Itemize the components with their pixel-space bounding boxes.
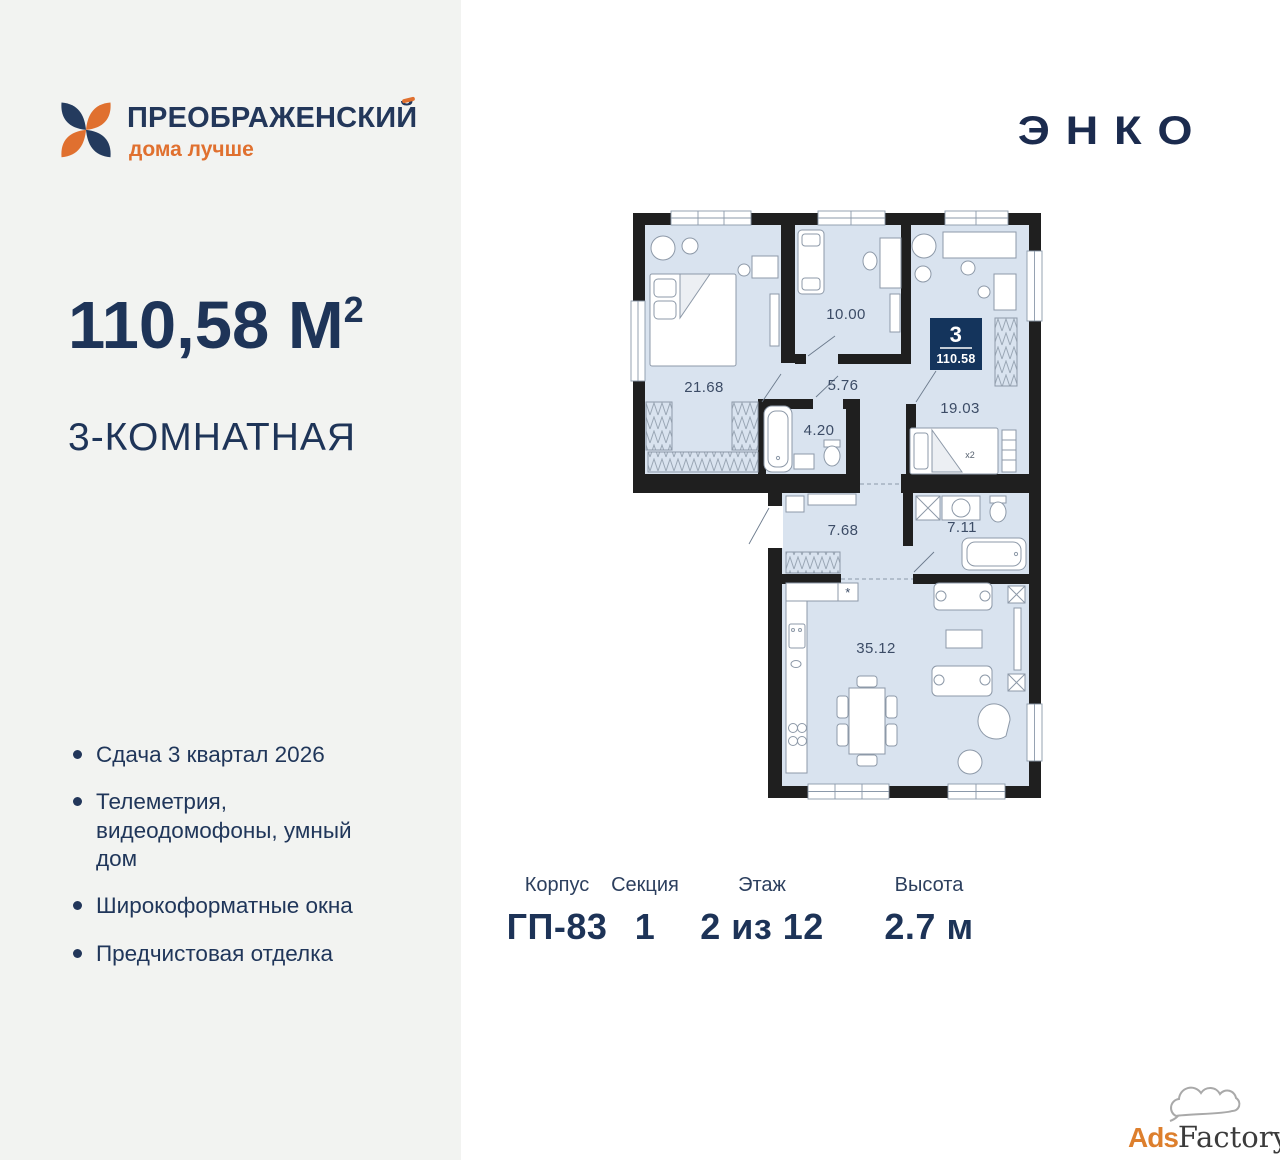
spec-label: Секция: [611, 874, 679, 897]
closet-icon: [786, 552, 840, 573]
brand-tagline: дома лучше: [129, 138, 254, 162]
sofa-icon: [934, 583, 992, 610]
room-area-label: 7.11: [947, 519, 977, 536]
feature-text: Сдача 3 квартал 2026: [96, 741, 391, 769]
sink-icon: [794, 454, 814, 469]
coffee-table-icon: [946, 630, 982, 648]
brand-logo: ПРЕОБРАЖЕНСКИЙ дома лучше: [50, 86, 450, 176]
spec-height: Высота 2.7 м: [884, 874, 973, 948]
spec-korpus: Корпус ГП-83: [507, 874, 608, 948]
apartment-area-title: 110,58 М2: [68, 292, 364, 359]
spec-value: 1: [611, 906, 679, 948]
watermark-text: AdsFactory: [1128, 1120, 1280, 1154]
bullet-icon: [73, 901, 82, 910]
toilet-icon: [824, 440, 840, 466]
console-icon: [808, 494, 856, 505]
apartment-type-title: 3-КОМНАТНАЯ: [68, 416, 356, 460]
double-bed-icon: [650, 274, 736, 366]
badge-rooms: 3: [950, 322, 963, 347]
washer-icon: [916, 496, 940, 520]
spec-floor: Этаж 2 из 12: [700, 874, 824, 948]
room-area-label: 7.68: [828, 522, 859, 539]
listing-flyer: { "brand": { "name": "ПРЕОБРАЖЕНСКИЙ", "…: [0, 0, 1280, 1160]
entrance-door-gap: [767, 506, 783, 548]
feature-text: Предчистовая отделка: [96, 940, 391, 968]
cabinet-icon: [786, 496, 804, 512]
watermark-factory: Factory: [1178, 1120, 1280, 1154]
bullet-icon: [73, 750, 82, 759]
list-item: Телеметрия, видеодомофоны, умный дом: [73, 788, 403, 873]
room-area-label: 10.00: [826, 306, 866, 323]
spec-label: Высота: [884, 874, 973, 897]
area-value: 110,58 М: [68, 288, 344, 363]
bathtub-icon: [962, 538, 1026, 570]
room-area-label: 21.68: [684, 379, 724, 396]
room-area-label: 19.03: [940, 400, 980, 417]
badge-area: 110.58: [936, 352, 975, 366]
toilet-icon: [990, 496, 1006, 522]
apartment-badge: 3 110.58: [930, 318, 982, 370]
bed-count-label: x2: [965, 450, 975, 460]
spec-section: Секция 1: [611, 874, 679, 948]
list-item: Сдача 3 квартал 2026: [73, 741, 403, 769]
watermark-ads: Ads: [1128, 1122, 1178, 1153]
spec-value: ГП-83: [507, 906, 608, 948]
bullet-icon: [73, 797, 82, 806]
kitchen-wall-counter-icon: [786, 601, 807, 773]
bathtub-icon: [764, 406, 792, 472]
kitchen-counter-icon: [786, 583, 838, 601]
list-item: Предчистовая отделка: [73, 940, 403, 968]
room-area-label: 5.76: [828, 377, 859, 394]
smoke-cloud-icon: [1162, 1076, 1258, 1122]
room-area-label: 35.12: [856, 640, 896, 657]
area-exponent: 2: [344, 289, 364, 330]
feature-list: Сдача 3 квартал 2026 Телеметрия, видеодо…: [73, 741, 403, 987]
sofa-icon: [932, 666, 992, 696]
room-area-label: 4.20: [804, 422, 835, 439]
fridge-mark: *: [845, 585, 850, 600]
feature-text: Телеметрия, видеодомофоны, умный дом: [96, 788, 391, 873]
spec-label: Корпус: [507, 874, 608, 897]
brand-pinwheel-icon: [50, 88, 122, 166]
spec-value: 2 из 12: [700, 906, 824, 948]
list-item: Широкоформатные окна: [73, 892, 403, 920]
developer-logo: ЭНКО: [982, 109, 1245, 154]
wardrobe-icon: [995, 318, 1017, 386]
floor-plan: 21.68 10.00 5.76 4.20 19.03 7.68 7.11 35…: [618, 206, 1048, 806]
sink-icon: [942, 496, 980, 520]
bullet-icon: [73, 949, 82, 958]
adsfactory-watermark: AdsFactory: [1128, 1076, 1280, 1160]
sofa-bed-icon: [798, 230, 824, 294]
spec-value: 2.7 м: [884, 906, 973, 948]
feature-text: Широкоформатные окна: [96, 892, 391, 920]
spec-label: Этаж: [700, 874, 824, 897]
brand-name: ПРЕОБРАЖЕНСКИЙ: [127, 102, 417, 135]
